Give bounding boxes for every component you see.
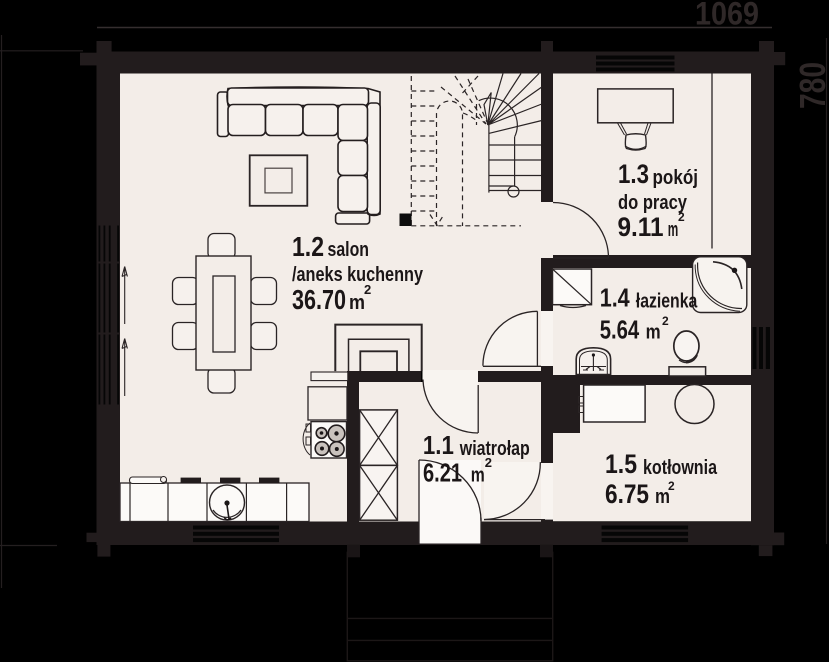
svg-text:1.1: 1.1 [423, 430, 454, 460]
svg-text:9.11: 9.11 [618, 212, 664, 242]
svg-text:6.21: 6.21 [423, 458, 462, 488]
svg-text:5.64: 5.64 [600, 315, 640, 345]
svg-text:2: 2 [662, 314, 669, 328]
svg-text:2: 2 [485, 455, 492, 470]
svg-text:780: 780 [792, 62, 829, 109]
svg-text:salon: salon [328, 238, 370, 261]
svg-text:m: m [471, 465, 485, 487]
svg-text:kotłownia: kotłownia [643, 457, 718, 479]
svg-text:m: m [349, 291, 365, 314]
svg-text:2: 2 [678, 210, 685, 224]
svg-text:6.75: 6.75 [605, 479, 649, 509]
svg-text:1.5: 1.5 [605, 449, 637, 479]
svg-text:1.2: 1.2 [292, 231, 324, 262]
svg-text:36.70: 36.70 [292, 284, 346, 315]
svg-text:2: 2 [668, 479, 675, 493]
svg-text:m: m [646, 322, 661, 344]
svg-text:wiatrołap: wiatrołap [459, 438, 530, 460]
svg-text:2: 2 [364, 282, 371, 297]
svg-text:pokój: pokój [653, 167, 699, 189]
svg-text:1069: 1069 [695, 0, 759, 32]
svg-text:1.4: 1.4 [600, 283, 630, 313]
svg-text:/aneks kuchenny: /aneks kuchenny [292, 263, 423, 286]
svg-text:łazienka: łazienka [636, 291, 698, 313]
svg-text:1.3: 1.3 [618, 159, 649, 189]
svg-text:m: m [668, 219, 679, 241]
